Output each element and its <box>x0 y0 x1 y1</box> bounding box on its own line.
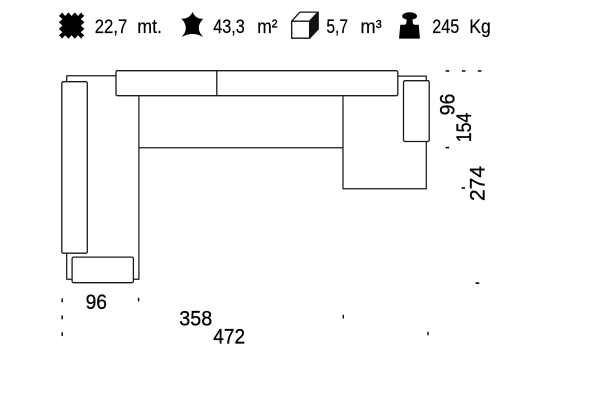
svg-text:m³: m³ <box>360 17 381 38</box>
svg-text:mt.: mt. <box>137 17 162 38</box>
svg-text:43,3: 43,3 <box>213 17 245 38</box>
svg-text:5,7: 5,7 <box>326 17 348 38</box>
svg-text:m²: m² <box>257 17 277 38</box>
svg-text:Kg: Kg <box>469 17 490 38</box>
svg-text:245: 245 <box>432 17 459 38</box>
svg-text:22,7: 22,7 <box>95 17 128 38</box>
svg-text:472: 472 <box>213 326 245 349</box>
svg-text:96: 96 <box>86 291 107 314</box>
svg-text:96: 96 <box>436 94 459 116</box>
svg-text:154: 154 <box>453 112 476 142</box>
svg-text:274: 274 <box>467 166 490 201</box>
svg-text:358: 358 <box>179 308 212 331</box>
